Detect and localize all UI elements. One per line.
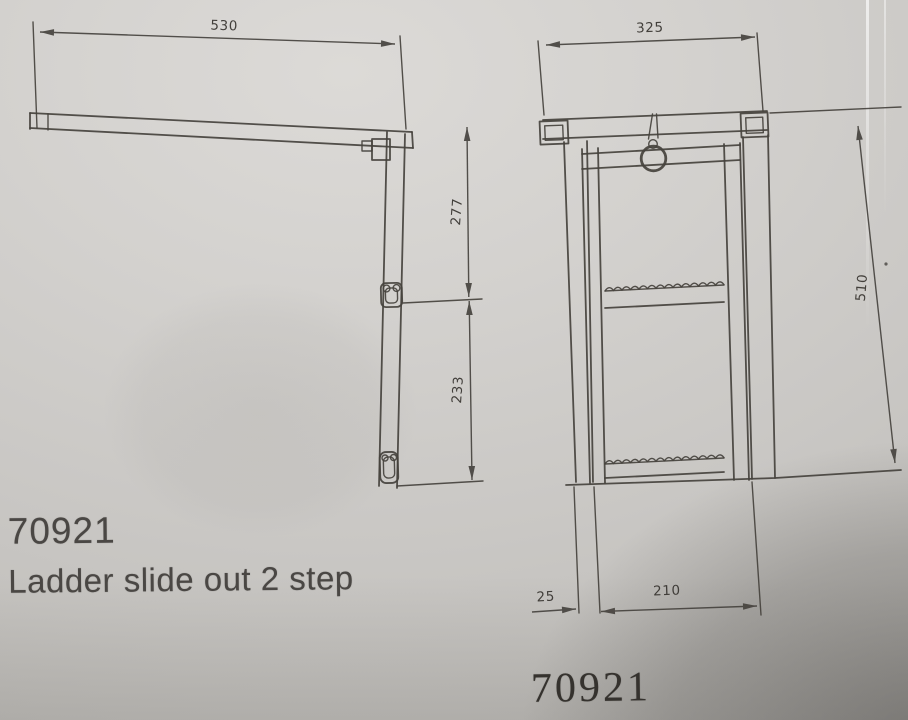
dim-530: 530 [33,18,406,129]
bracket-inner [385,288,397,303]
plate-top-edge [543,111,767,120]
dim-210-label: 210 [653,583,681,600]
extension-line [538,41,544,115]
dim-530-label: 530 [210,18,238,35]
left-end-tab [540,120,569,144]
step-bottom-edge [605,302,724,308]
slide-plate-profile [30,113,413,148]
dimension-line-233 [469,301,472,480]
dimension-line-25 [532,609,576,612]
extension-line [770,107,901,113]
dim-510-label: 510 [853,273,871,302]
inner-left-rail-b [598,148,605,483]
extension-line [594,487,600,613]
extension-line [752,482,761,615]
left-rail-outer [564,142,576,482]
dimension-line [546,37,755,45]
extension-line [400,36,406,129]
dimension-line [40,32,395,44]
drawing-number: 70921 [531,663,652,713]
dimension-line-277 [467,127,469,297]
dimension-line-210 [601,606,757,612]
photographed-drawing-sheet: 530 [0,0,908,720]
dim-325-label: 325 [636,20,664,37]
inner-right-rail-a [724,144,734,480]
plate-bottom-edge [30,128,413,148]
product-code: 70921 [8,507,354,553]
pull-ring [641,114,666,171]
plate-right-end [412,132,413,148]
front-view: 325 [532,20,901,615]
step-bottom-edge [605,472,724,478]
dim-25-210: 25 210 [532,482,761,615]
side-view: 530 [30,18,483,488]
right-rail-outer [768,135,775,478]
dim-277-233: 277 233 [448,127,472,480]
extension-line [397,481,483,486]
step-1 [605,282,724,308]
dim-277-label: 277 [448,197,466,226]
plate-bottom-edge [543,130,767,139]
dim-233-label: 233 [449,375,467,404]
right-end-tab [741,112,769,137]
plate-top-edge [30,113,412,132]
dim-25-label: 25 [536,589,555,606]
product-label: 70921 Ladder slide out 2 step [8,507,354,601]
inner-ladder [582,114,749,483]
product-name: Ladder slide out 2 step [8,559,354,601]
dim-325: 325 [538,20,763,115]
extension-line [33,22,37,128]
extension-line [574,487,579,613]
bottom-step-bracket [380,452,483,486]
step-2 [605,455,724,478]
rail-back-edge [397,134,405,488]
ladder-technical-drawing: 530 [0,0,908,720]
extension-line [757,33,763,111]
ink-speck [884,262,887,265]
rail-front-edge [379,132,387,486]
dim-510: 510 [770,107,901,463]
extension-line [403,299,482,303]
mid-step-bracket [381,283,482,308]
